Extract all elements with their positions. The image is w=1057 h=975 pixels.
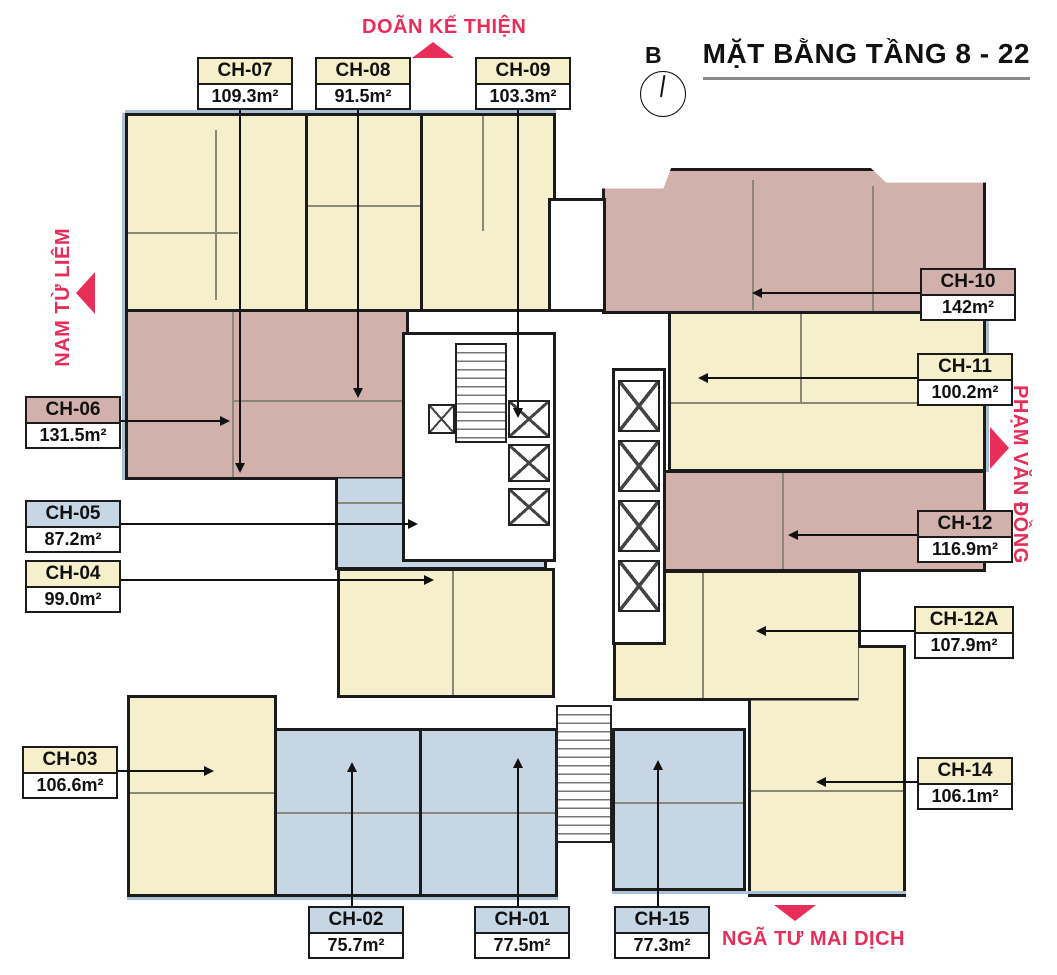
leader-line bbox=[357, 107, 359, 390]
wall-partition bbox=[482, 116, 484, 231]
wall-partition bbox=[130, 792, 274, 794]
unit-region-ch-04 bbox=[337, 568, 555, 698]
unit-region-ch-08 bbox=[305, 113, 423, 312]
unit-area: 91.5m² bbox=[317, 85, 409, 108]
unit-id: CH-09 bbox=[477, 59, 569, 85]
lobby-connector bbox=[548, 198, 606, 312]
unit-area: 106.1m² bbox=[919, 785, 1011, 808]
unit-region-ch-07 bbox=[125, 113, 308, 312]
unit-area: 77.5m² bbox=[476, 934, 568, 957]
leader-arrow bbox=[698, 373, 708, 383]
elevator-shaft bbox=[428, 404, 455, 434]
unit-label-ch-11: CH-11 100.2m² bbox=[917, 353, 1013, 406]
leader-line bbox=[824, 781, 918, 783]
leader-arrow bbox=[353, 388, 363, 398]
leader-line bbox=[351, 772, 353, 908]
leader-line bbox=[112, 579, 426, 581]
unit-label-ch-05: CH-05 87.2m² bbox=[25, 500, 121, 553]
leader-line bbox=[706, 377, 918, 379]
unit-id: CH-04 bbox=[27, 562, 119, 588]
staircase bbox=[556, 705, 612, 843]
unit-id: CH-11 bbox=[919, 355, 1011, 381]
unit-region-ch-03 bbox=[127, 695, 277, 897]
leader-arrow bbox=[756, 626, 766, 636]
leader-line bbox=[239, 107, 241, 465]
arrow-right-icon bbox=[990, 427, 1009, 469]
wall-partition bbox=[308, 205, 420, 207]
unit-label-ch-12: CH-12 116.9m² bbox=[917, 510, 1013, 563]
compass-north-label: B bbox=[645, 42, 662, 69]
unit-label-ch-12a: CH-12A 107.9m² bbox=[914, 606, 1014, 659]
unit-area: 106.6m² bbox=[24, 774, 116, 797]
unit-label-ch-06: CH-06 131.5m² bbox=[25, 396, 121, 449]
wall-partition bbox=[422, 812, 555, 814]
unit-area: 103.3m² bbox=[477, 85, 569, 108]
leader-arrow bbox=[424, 575, 434, 585]
page-title: MẶT BẰNG TẦNG 8 - 22 bbox=[703, 38, 1030, 80]
unit-label-ch-01: CH-01 77.5m² bbox=[474, 906, 570, 959]
leader-arrow bbox=[513, 758, 523, 768]
leader-arrow bbox=[513, 408, 523, 418]
arrow-up-icon bbox=[412, 42, 454, 58]
elevator-shaft bbox=[618, 380, 660, 432]
unit-area: 87.2m² bbox=[27, 528, 119, 551]
leader-arrow bbox=[408, 519, 418, 529]
leader-arrow bbox=[204, 766, 214, 776]
wall-partition bbox=[215, 130, 217, 300]
elevator-shaft bbox=[618, 440, 660, 492]
facade-line bbox=[122, 113, 125, 480]
unit-area: 107.9m² bbox=[916, 634, 1012, 657]
unit-area: 100.2m² bbox=[919, 381, 1011, 404]
unit-id: CH-02 bbox=[310, 908, 402, 934]
unit-label-ch-04: CH-04 99.0m² bbox=[25, 560, 121, 613]
unit-label-ch-15: CH-15 77.3m² bbox=[614, 906, 710, 959]
unit-id: CH-12A bbox=[916, 608, 1012, 634]
leader-line bbox=[115, 420, 222, 422]
street-label-bottom: NGÃ TƯ MAI DỊCH bbox=[722, 928, 905, 951]
unit-id: CH-03 bbox=[24, 748, 116, 774]
unit-region-ch-09 bbox=[420, 113, 556, 312]
unit-region-ch-06 bbox=[125, 309, 409, 480]
elevator-shaft bbox=[508, 488, 550, 526]
wall-partition bbox=[615, 802, 743, 804]
elevator-shaft bbox=[508, 444, 550, 482]
street-label-top: DOÃN KẾ THIỆN bbox=[362, 16, 526, 39]
leader-arrow bbox=[220, 416, 230, 426]
street-label-left: NAM TỪ LIÊM bbox=[52, 228, 75, 367]
wall-partition bbox=[782, 473, 784, 569]
leader-line bbox=[517, 768, 519, 908]
wall-partition bbox=[702, 573, 704, 698]
unit-area: 116.9m² bbox=[919, 538, 1011, 561]
elevator-shaft bbox=[618, 560, 660, 612]
unit-area: 131.5m² bbox=[27, 424, 119, 447]
unit-id: CH-06 bbox=[27, 398, 119, 424]
unit-label-ch-07: CH-07 109.3m² bbox=[197, 57, 293, 110]
wall-partition bbox=[800, 314, 802, 402]
leader-line bbox=[517, 107, 519, 410]
leader-arrow bbox=[816, 777, 826, 787]
unit-label-ch-10: CH-10 142m² bbox=[920, 268, 1016, 321]
staircase bbox=[455, 343, 507, 443]
leader-arrow bbox=[788, 530, 798, 540]
elevator-shaft bbox=[618, 500, 660, 552]
leader-line bbox=[760, 292, 921, 294]
leader-line bbox=[657, 770, 659, 908]
leader-arrow bbox=[653, 760, 663, 770]
unit-id: CH-08 bbox=[317, 59, 409, 85]
leader-arrow bbox=[752, 288, 762, 298]
unit-id: CH-01 bbox=[476, 908, 568, 934]
leader-arrow bbox=[235, 463, 245, 473]
unit-label-ch-02: CH-02 75.7m² bbox=[308, 906, 404, 959]
facade-line bbox=[127, 897, 558, 900]
wall-partition bbox=[128, 232, 238, 234]
wall-partition bbox=[452, 571, 454, 695]
unit-area: 99.0m² bbox=[27, 588, 119, 611]
unit-label-ch-03: CH-03 106.6m² bbox=[22, 746, 118, 799]
unit-label-ch-14: CH-14 106.1m² bbox=[917, 757, 1013, 810]
arrow-down-icon bbox=[774, 905, 816, 921]
leader-line bbox=[112, 523, 410, 525]
wall-partition bbox=[751, 790, 903, 792]
unit-label-ch-08: CH-08 91.5m² bbox=[315, 57, 411, 110]
wall-partition bbox=[232, 400, 406, 402]
unit-id: CH-14 bbox=[919, 759, 1011, 785]
unit-region-ch-15 bbox=[612, 728, 746, 891]
wall-partition bbox=[277, 812, 419, 814]
unit-id: CH-05 bbox=[27, 502, 119, 528]
leader-line bbox=[112, 770, 206, 772]
arrow-left-icon bbox=[76, 272, 95, 314]
leader-line bbox=[764, 630, 915, 632]
unit-id: CH-07 bbox=[199, 59, 291, 85]
unit-area: 75.7m² bbox=[310, 934, 402, 957]
unit-area: 77.3m² bbox=[616, 934, 708, 957]
facade-line bbox=[125, 110, 556, 113]
unit-area: 142m² bbox=[922, 296, 1014, 319]
leader-line bbox=[796, 534, 918, 536]
unit-id: CH-10 bbox=[922, 270, 1014, 296]
unit-id: CH-15 bbox=[616, 908, 708, 934]
unit-area: 109.3m² bbox=[199, 85, 291, 108]
unit-id: CH-12 bbox=[919, 512, 1011, 538]
unit-label-ch-09: CH-09 103.3m² bbox=[475, 57, 571, 110]
wall-partition bbox=[232, 312, 234, 477]
floor-plan-page: MẶT BẰNG TẦNG 8 - 22 B DOÃN KẾ THIỆN NAM… bbox=[0, 0, 1057, 975]
leader-arrow bbox=[347, 762, 357, 772]
elevator-shaft bbox=[508, 400, 550, 438]
